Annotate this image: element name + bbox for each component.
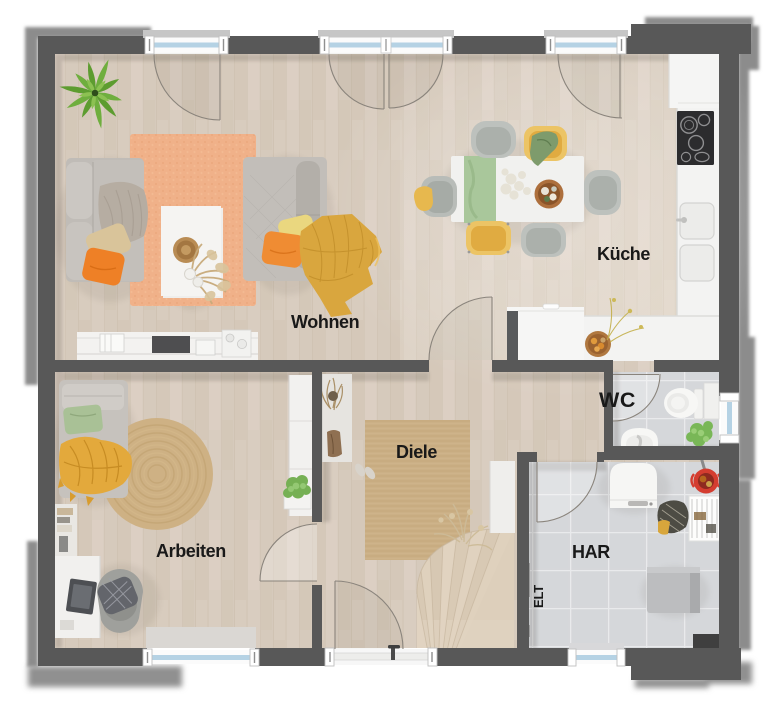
svg-text:HAR: HAR <box>572 542 610 562</box>
svg-text:WC: WC <box>599 388 636 412</box>
svg-text:Arbeiten: Arbeiten <box>156 541 226 561</box>
svg-text:Küche: Küche <box>597 244 650 264</box>
svg-text:Wohnen: Wohnen <box>291 312 359 332</box>
svg-text:Diele: Diele <box>396 442 437 462</box>
svg-text:ELT: ELT <box>531 585 546 608</box>
